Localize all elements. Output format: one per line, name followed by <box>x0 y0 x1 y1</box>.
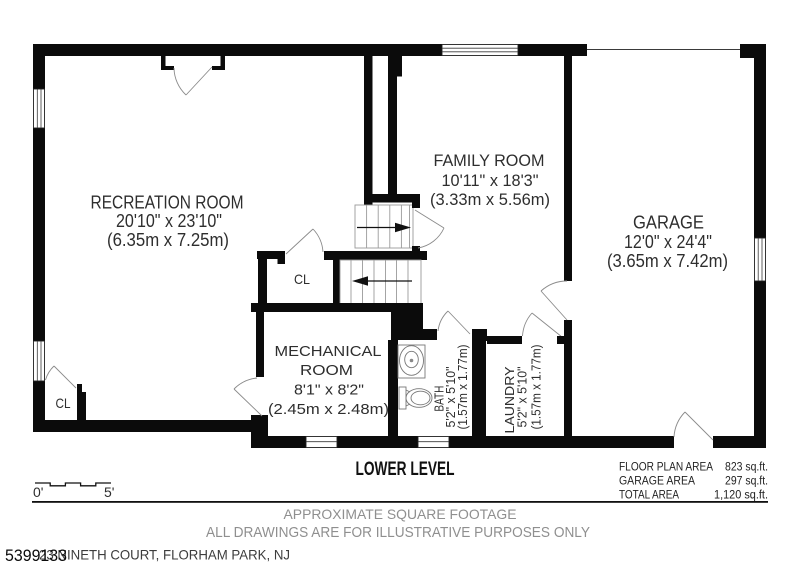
svg-text:1,120 sq.ft.: 1,120 sq.ft. <box>714 490 768 502</box>
svg-text:RECREATION ROOM: RECREATION ROOM <box>91 193 244 213</box>
svg-text:5'2" x 5'10": 5'2" x 5'10" <box>515 367 529 428</box>
svg-text:GARAGE AREA: GARAGE AREA <box>619 476 695 488</box>
svg-text:(6.35m x 7.25m): (6.35m x 7.25m) <box>107 230 229 250</box>
svg-text:8'1" x 8'2": 8'1" x 8'2" <box>294 382 364 399</box>
svg-text:5': 5' <box>104 484 114 500</box>
svg-text:12'0" x 24'4": 12'0" x 24'4" <box>624 232 712 252</box>
svg-text:5399133: 5399133 <box>5 547 67 565</box>
svg-text:CL: CL <box>56 395 71 411</box>
svg-text:CL: CL <box>294 271 310 287</box>
svg-text:23 NINETH COURT, FLORHAM PARK,: 23 NINETH COURT, FLORHAM PARK, NJ <box>39 547 290 563</box>
svg-text:LOWER LEVEL: LOWER LEVEL <box>356 459 455 480</box>
svg-text:FLOOR PLAN AREA: FLOOR PLAN AREA <box>619 462 713 474</box>
svg-text:297 sq.ft.: 297 sq.ft. <box>725 476 768 488</box>
svg-text:(3.65m x 7.42m): (3.65m x 7.42m) <box>607 251 728 271</box>
svg-text:10'11" x 18'3": 10'11" x 18'3" <box>442 171 539 190</box>
svg-text:FAMILY ROOM: FAMILY ROOM <box>434 151 545 170</box>
svg-text:(2.45m x 2.48m): (2.45m x 2.48m) <box>268 401 389 418</box>
svg-text:GARAGE: GARAGE <box>633 213 704 233</box>
svg-text:(1.57m x 1.77m): (1.57m x 1.77m) <box>529 345 543 430</box>
svg-text:ALL DRAWINGS ARE FOR ILLUSTRAT: ALL DRAWINGS ARE FOR ILLUSTRATIVE PURPOS… <box>206 524 590 541</box>
svg-text:823 sq.ft.: 823 sq.ft. <box>725 462 768 474</box>
svg-text:MECHANICAL: MECHANICAL <box>275 343 382 360</box>
svg-text:0': 0' <box>33 484 43 500</box>
svg-text:TOTAL AREA: TOTAL AREA <box>619 490 679 502</box>
svg-text:APPROXIMATE SQUARE FOOTAGE: APPROXIMATE SQUARE FOOTAGE <box>284 506 517 522</box>
svg-text:ROOM: ROOM <box>300 362 353 379</box>
svg-text:(1.57m x 1.77m): (1.57m x 1.77m) <box>456 345 470 430</box>
svg-text:20'10" x 23'10": 20'10" x 23'10" <box>116 211 222 231</box>
svg-text:(3.33m x 5.56m): (3.33m x 5.56m) <box>430 190 550 209</box>
